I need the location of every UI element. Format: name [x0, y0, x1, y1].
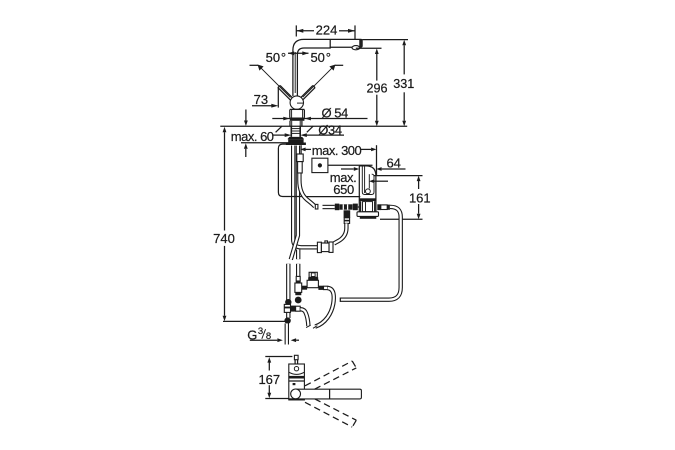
svg-text:°: °: [281, 50, 286, 65]
svg-text:°: °: [326, 50, 331, 65]
svg-text:3: 3: [258, 326, 263, 337]
svg-text:max. 60: max. 60: [231, 129, 274, 144]
svg-text:740: 740: [213, 231, 235, 246]
svg-text:650: 650: [333, 182, 354, 197]
svg-text:64: 64: [386, 156, 400, 171]
svg-text:224: 224: [316, 23, 338, 38]
svg-text:73: 73: [254, 92, 268, 107]
svg-text:296: 296: [366, 82, 387, 96]
svg-text:331: 331: [393, 77, 414, 91]
svg-text:50: 50: [266, 50, 280, 65]
svg-text:max. 300: max. 300: [312, 143, 362, 158]
svg-text:Ø34: Ø34: [318, 122, 342, 137]
svg-text:Ø 54: Ø 54: [322, 105, 348, 120]
svg-text:167: 167: [258, 372, 280, 387]
svg-text:50: 50: [310, 50, 324, 65]
svg-text:161: 161: [409, 190, 431, 205]
